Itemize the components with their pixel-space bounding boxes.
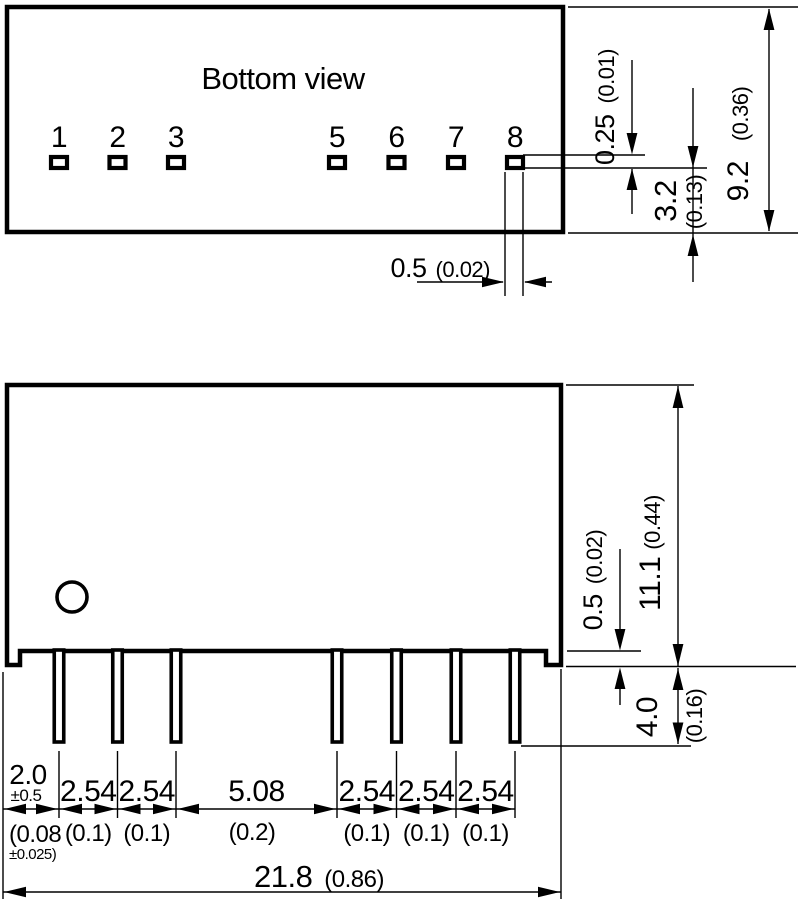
dim-inch: (0.86) [324, 866, 384, 893]
mechanical-drawing-page: Bottom view 1 2 3 5 6 7 8 0.25 ( [0, 0, 800, 905]
arrow-down-icon [615, 629, 626, 651]
dim-text: 0.25 (0.01) [590, 49, 620, 165]
dim-text: 0.5 (0.02) [578, 530, 608, 630]
arrow-down-icon [688, 146, 699, 168]
pin-1 [54, 650, 64, 742]
dim-pin-to-edge: 3.2 (0.13) [648, 88, 707, 282]
pin-6 [392, 650, 402, 742]
arrow-up-icon [688, 235, 699, 257]
arrow-left-icon [5, 804, 27, 814]
dim-pin-length: 4.0 (0.16) [631, 668, 707, 744]
dim-pitch-chain: 2.0 ±0.5 (0.08 ±0.025) 2.54 2.54 5.08 2.… [3, 759, 515, 863]
package-dimension-drawing: Bottom view 1 2 3 5 6 7 8 0.25 ( [0, 0, 800, 905]
arrow-right-icon [36, 804, 58, 814]
dim-pitch-inch: (0.2) [229, 819, 276, 846]
pin-7 [451, 650, 461, 742]
dim-mm: 9.2 [722, 161, 755, 201]
dim-pitch-mm: 2.54 [457, 775, 513, 808]
dim-standoff: 0.5 (0.02) [578, 530, 625, 705]
dim-text: 9.2 (0.36) [722, 87, 755, 202]
pin1-marker-circle [57, 582, 87, 612]
dim-pitch-inch: (0.1) [343, 820, 390, 847]
pin-label-1: 1 [51, 121, 67, 154]
dim-inch: (0.02) [436, 257, 490, 282]
dim-inch: (0.13) [682, 175, 707, 229]
pin-label-5: 5 [329, 121, 345, 154]
pin-label-8: 8 [507, 121, 523, 154]
dim-inch: (0.02) [582, 530, 607, 584]
arrow-left-icon [178, 804, 200, 814]
pin-label-6: 6 [388, 121, 404, 154]
dim-pin1-offset-inch: (0.08 [9, 821, 61, 848]
pin-8 [510, 650, 520, 742]
dim-mm: 0.25 [590, 114, 620, 165]
dim-pitch-mm: 2.54 [398, 775, 454, 808]
dim-pitch-mm: 5.08 [228, 775, 284, 808]
dim-body-width: 21.8 (0.86) [3, 859, 561, 897]
arrow-down-icon [627, 133, 638, 155]
dim-mm: 0.5 [578, 594, 608, 630]
arrow-down-icon [673, 644, 684, 666]
dim-inch: (0.44) [640, 495, 665, 549]
dim-pitch-inch: (0.1) [123, 820, 170, 847]
dim-text: 11.1 (0.44) [634, 495, 667, 611]
pin-5 [332, 650, 342, 742]
bottom-view: Bottom view 1 2 3 5 6 7 8 0.25 ( [7, 7, 798, 296]
arrow-left-icon [4, 887, 26, 897]
pin-pad-3 [168, 157, 184, 168]
dim-inch: (0.16) [682, 689, 707, 743]
dim-inch: (0.36) [728, 87, 753, 141]
dim-pitch-inch: (0.1) [403, 820, 450, 847]
dim-pin1-offset-tol: ±0.5 [11, 786, 42, 805]
pin-label-7: 7 [448, 121, 464, 154]
arrow-right-icon [538, 887, 560, 897]
pin-2 [113, 650, 123, 742]
dim-body-depth: 9.2 (0.36) [722, 9, 774, 232]
pin-pad-2 [110, 157, 126, 168]
dim-pitch-inch: (0.1) [65, 820, 112, 847]
arrow-up-icon [764, 9, 775, 31]
arrow-right-icon [314, 804, 336, 814]
side-view-outline [7, 385, 561, 665]
pin-label-2: 2 [109, 121, 125, 154]
arrow-up-icon [673, 386, 684, 408]
pin-label-3: 3 [168, 121, 184, 154]
dim-mm: 3.2 [648, 180, 683, 222]
dim-pitch-mm: 2.54 [339, 775, 395, 808]
pin-pad-5 [329, 157, 345, 168]
dim-pin1-offset-inch-tol: ±0.025) [9, 846, 57, 863]
dim-mm: 11.1 [634, 557, 667, 611]
pin-3 [171, 650, 181, 742]
dim-text: 0.5 (0.02) [391, 253, 490, 283]
side-view: 11.1 (0.44) 0.5 (0.02) 4.0 (0.16) [3, 385, 796, 899]
pin-pad-7 [448, 157, 464, 168]
dim-inch: (0.01) [594, 49, 619, 103]
dim-pitch-inch: (0.1) [462, 820, 509, 847]
dim-pin-thickness: 0.25 (0.01) [590, 49, 637, 214]
arrow-down-icon [764, 210, 775, 232]
dim-pitch-mm: 2.54 [60, 775, 116, 808]
pin-pad-6 [389, 157, 405, 168]
bottom-view-outline [7, 7, 563, 232]
arrow-up-icon [615, 668, 626, 690]
dim-pitch-mm: 2.54 [119, 775, 175, 808]
pin-pad-1 [51, 157, 67, 168]
dim-mm: 21.8 [254, 859, 312, 894]
dim-case-height: 11.1 (0.44) [634, 386, 683, 666]
arrow-up-icon [673, 669, 684, 691]
dim-text: 21.8 (0.86) [254, 859, 384, 894]
dim-mm: 0.5 [391, 253, 427, 283]
pin-pad-8 [507, 157, 523, 168]
bottom-view-title: Bottom view [201, 61, 365, 96]
dim-mm: 4.0 [631, 697, 664, 737]
